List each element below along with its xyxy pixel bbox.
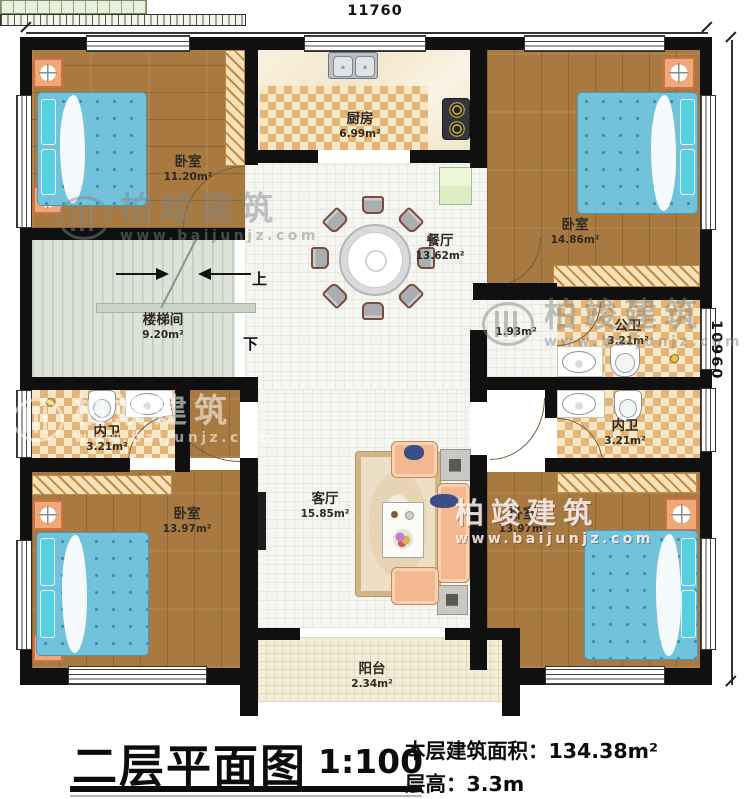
plant-pot [663,57,695,89]
wall [545,460,557,472]
wall [240,628,258,716]
balcony-railing [0,14,246,26]
wardrobe [553,265,700,287]
wall [20,458,130,472]
room-name: 卧室 [138,155,238,171]
floor-plan: 卧室 11.20m² 厨房 6.99m² 卧室 14.86m² 餐厅 13.62… [0,0,750,726]
wardrobe [32,475,172,495]
wall [245,37,258,165]
plant-pot [665,498,698,531]
window [545,666,665,685]
sliding-door [0,0,147,14]
window [700,95,716,230]
stair-direction-line [211,273,251,275]
room-area: 3.21m² [578,335,678,347]
pillow [40,590,55,638]
room-label-stairwell: 楼梯间 9.20m² [113,313,213,341]
wall [240,390,258,402]
person-figure [404,445,424,460]
shower-head [670,354,679,363]
floor-height-line: 层高：3.3m [405,767,524,797]
plant-pot [33,500,63,530]
kitchen-sink [328,52,378,79]
room-label-bedroom-top-left: 卧室 11.20m² [138,155,238,183]
pillow [681,538,696,586]
room-name: 卧室 [473,507,573,523]
floor-area-line: 本层建筑面积：134.38m² [405,734,658,764]
wall [502,628,520,716]
window [304,35,426,52]
cup [405,511,414,520]
toilet [610,344,640,377]
window [16,390,32,458]
pillow [680,149,695,195]
dimension-top-value: 11760 [300,3,450,19]
wall [20,228,245,240]
room-area: 3.21m² [57,441,157,453]
shower-head [46,398,55,407]
room-name: 内卫 [575,419,675,435]
wardrobe [557,473,697,493]
room-label-balcony: 阳台 2.34m² [322,662,422,690]
room-name: 楼梯间 [113,313,213,329]
wall [175,390,190,472]
dining-chair [321,281,349,309]
stair-arrow [198,268,211,280]
sink-basin [333,56,353,77]
fridge [439,167,472,205]
room-label-ensuite-left: 内卫 3.21m² [57,425,157,453]
wall [20,377,258,390]
stair-arrow [156,268,169,280]
room-area: 13.97m² [473,523,573,535]
room-name: 卧室 [137,507,237,523]
wall [545,390,557,418]
wall [258,150,318,163]
wardrobe [225,50,245,166]
floor-area-value: 134.38m² [549,739,658,763]
floor-height-value: 3.3m [467,772,525,796]
room-area: 6.99m² [310,128,410,140]
tv [257,492,266,550]
sink-basin [355,56,375,77]
room-label-kitchen: 厨房 6.99m² [310,112,410,140]
wall [700,37,712,95]
wall [470,390,487,402]
bed-blanket [651,95,676,211]
dining-chair [362,196,384,214]
dimension-line-top [26,32,708,34]
room-label-dining: 餐厅 13.62m² [395,234,485,262]
wall [470,37,487,168]
stove-burner [449,102,465,118]
room-name: 阳台 [322,662,422,678]
pillow [681,590,696,638]
room-area: 13.97m² [137,523,237,535]
bed-blanket [656,534,681,656]
room-area: 11.20m² [138,171,238,183]
pillow [41,149,56,195]
pillow [41,99,56,145]
wall [700,452,712,538]
dimension-line-right [731,40,733,685]
wall [445,628,502,640]
wall [470,330,487,390]
person-figure [430,494,458,508]
title-block: 二层平面图 1:100 本层建筑面积：134.38m² 层高：3.3m [0,726,750,799]
room-area: 14.86m² [525,234,625,246]
wall [545,458,700,472]
side-table [437,585,468,615]
window [524,35,665,52]
window [16,540,32,650]
room-label-hallway: 1.93m² [482,326,550,338]
room-area: 2.34m² [322,678,422,690]
stove [442,98,470,140]
flower-vase [393,529,413,549]
dimension-right-value: 10960 [708,320,724,410]
title-underline [70,786,422,792]
room-label-living: 客厅 15.85m² [275,492,375,520]
armchair [391,567,439,605]
room-label-ensuite-right: 内卫 3.21m² [575,419,675,447]
room-name: 公卫 [578,319,678,335]
pillow [680,99,695,145]
wall [20,37,32,95]
stair-up-label: 上 [252,268,267,289]
wall [665,668,712,685]
room-name: 厨房 [310,112,410,128]
wall [700,230,712,308]
room-area: 13.62m² [395,250,485,262]
dining-chair [362,302,384,320]
wall [553,287,700,300]
stove-burner [449,121,465,137]
window [16,95,32,228]
room-name: 餐厅 [395,234,485,250]
window [700,538,716,650]
dining-chair [396,281,424,309]
wall [258,628,300,640]
bathroom-sink [562,351,596,373]
hallway-floor [487,300,557,377]
room-name: 内卫 [57,425,157,441]
room-area: 9.20m² [113,329,213,341]
room-label-public-bath: 公卫 3.21m² [578,319,678,347]
wall [473,377,700,390]
bed-blanket [62,535,87,653]
cup [391,511,398,518]
door-arc-bedroom-bottom-right [490,398,545,460]
room-area: 1.93m² [482,326,550,338]
room-label-bedroom-top-right: 卧室 14.86m² [525,218,625,246]
wall [20,668,68,685]
title-underline-shadow [70,795,422,797]
floor-area-label: 本层建筑面积： [405,739,549,763]
dining-chair [321,206,349,234]
dining-chair [396,206,424,234]
room-name: 客厅 [275,492,375,508]
room-area: 3.21m² [575,435,675,447]
side-table [440,449,471,481]
window [86,35,190,52]
wall [20,228,32,390]
room-label-bedroom-bottom-left: 卧室 13.97m² [137,507,237,535]
bed-blanket [60,95,85,203]
window [68,666,207,685]
toilet [88,390,116,422]
floor-height-label: 层高： [405,772,467,796]
dining-chair [311,247,329,269]
stair-direction-line [116,273,156,275]
pillow [40,538,55,586]
dining-table-center [365,250,387,272]
plant-pot [33,58,63,88]
coffee-table [382,502,424,558]
room-name: 卧室 [525,218,625,234]
wall [473,283,557,300]
bathroom-sink [130,393,164,415]
stair-down-label: 下 [243,333,258,354]
room-area: 15.85m² [275,508,375,520]
room-label-bedroom-bottom-right: 卧室 13.97m² [473,507,573,535]
bathroom-sink [562,393,596,415]
wall [410,150,487,163]
